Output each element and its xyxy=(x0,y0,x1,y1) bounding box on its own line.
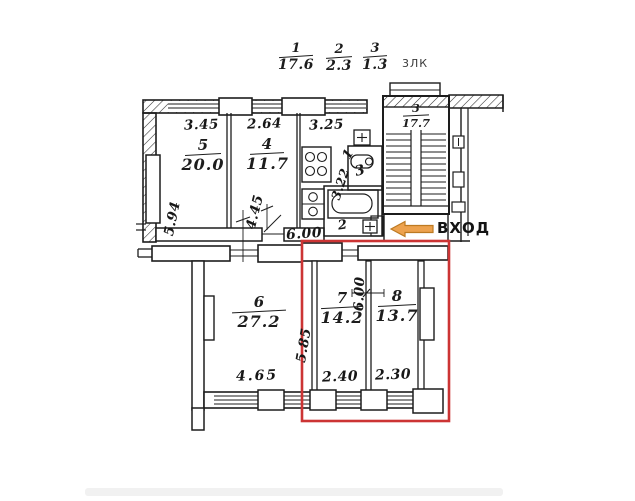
window-pier xyxy=(310,390,336,410)
dim-room7-depth: 6.00 xyxy=(351,276,368,311)
header-fraction-3: 3 1.3 xyxy=(361,42,389,73)
room-area: 14.2 xyxy=(317,309,367,327)
dim-room7-width: 2.40 xyxy=(322,368,359,385)
room-area: 13.7 xyxy=(374,307,420,325)
room6-label: 6 27.2 xyxy=(228,295,290,331)
room4-label: 4 11.7 xyxy=(246,137,288,173)
room-area: 11.7 xyxy=(246,155,288,173)
fraction-denominator: 1.3 xyxy=(361,58,389,73)
dim-room5-width: 3.45 xyxy=(184,116,219,133)
stove-icon xyxy=(302,147,331,182)
lower-unit-walls xyxy=(192,261,443,430)
scan-artifact xyxy=(85,488,503,496)
room-number: 6 xyxy=(228,295,290,310)
entrance-label: ВХОД xyxy=(437,219,490,237)
dim-room4-width: 2.64 xyxy=(247,115,282,132)
pilaster xyxy=(204,296,214,340)
room-number: 5 xyxy=(181,138,225,153)
stairwell-abbreviation: 3ЛК xyxy=(402,57,428,70)
floor-plan-page: 1 17.6 2 2.3 3 1.3 3ЛК 3.45 2.64 3.25 5 … xyxy=(0,0,635,501)
room-number: 4 xyxy=(246,137,288,152)
radiator-symbol xyxy=(453,172,464,187)
closet xyxy=(420,288,434,340)
room-area: 17.7 xyxy=(399,117,433,129)
window-box xyxy=(146,155,160,223)
stairwell-label: 3 17.7 xyxy=(399,103,433,129)
room-number: 3 xyxy=(399,103,433,114)
room5-label: 5 20.0 xyxy=(181,138,225,174)
header-fraction-1: 1 17.6 xyxy=(277,42,315,73)
window-box xyxy=(219,98,252,115)
window-pier xyxy=(258,390,284,410)
room8-label: 8 13.7 xyxy=(374,289,420,325)
header-fraction-2: 2 2.3 xyxy=(324,43,354,74)
dim-room8-width: 2.30 xyxy=(375,366,412,383)
room-area: 27.2 xyxy=(228,313,290,331)
window-strip xyxy=(168,101,366,112)
room-area: 20.0 xyxy=(181,156,225,174)
window-pier xyxy=(413,389,443,413)
dim-room6-width: 4.65 xyxy=(236,367,279,384)
fraction-numerator: 1 xyxy=(277,42,315,55)
fraction-numerator: 2 xyxy=(324,43,354,56)
entrance-arrow-icon xyxy=(391,222,433,237)
dim-corridor: 6.00 xyxy=(285,225,322,243)
dim-kitchen-width: 3.25 xyxy=(309,116,344,133)
fraction-denominator: 17.6 xyxy=(277,58,315,73)
window-pier xyxy=(361,390,387,410)
window-box xyxy=(282,98,325,115)
fraction-denominator: 2.3 xyxy=(324,59,354,74)
bath-number: 2 xyxy=(337,217,348,233)
fraction-numerator: 3 xyxy=(361,42,389,55)
floor-plan-drawing xyxy=(0,0,635,501)
toilet-flush-icon xyxy=(366,158,373,165)
radiator-symbol xyxy=(452,202,465,212)
room-number: 8 xyxy=(374,289,420,304)
